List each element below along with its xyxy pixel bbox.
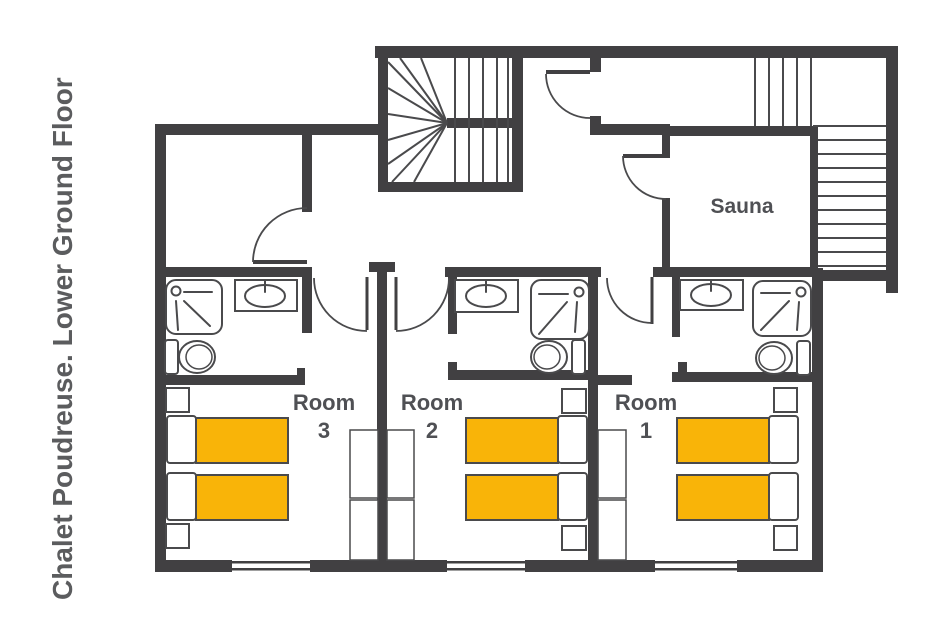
room-3-number: 3 — [318, 418, 330, 443]
window-room1 — [655, 561, 737, 571]
page-title: Chalet Poudreuse. Lower Ground Floor — [47, 77, 78, 600]
wall-topleftroom-right — [302, 130, 312, 212]
toilet-icon — [756, 341, 810, 375]
nightstand — [562, 526, 586, 550]
room-1: Room 1 — [598, 388, 798, 560]
bathroom-2 — [455, 280, 589, 374]
wall-corridor-2 — [445, 267, 601, 277]
wall-right-lower — [812, 268, 823, 572]
closet — [387, 500, 414, 560]
wall-bath3-return — [297, 368, 305, 375]
bathroom-1 — [680, 280, 811, 375]
sauna-label: Sauna — [710, 195, 773, 218]
wall-stair-left — [378, 46, 388, 192]
door-topleft-room — [253, 208, 307, 262]
wall-stair-right — [512, 46, 523, 192]
wall-hall-north — [590, 124, 670, 135]
wall-bottom-1 — [155, 560, 232, 572]
toilet-icon — [165, 340, 215, 374]
window-room2 — [447, 561, 525, 571]
wall-stair-bottom — [378, 182, 523, 192]
wall-bottom-2 — [310, 560, 447, 572]
wall-corridor-3 — [653, 267, 818, 277]
wall-upper-jamb — [590, 58, 601, 72]
wall-bottom-3 — [525, 560, 655, 572]
toilet-icon — [531, 340, 585, 374]
wall-corridor-1 — [155, 267, 312, 277]
bed — [167, 473, 288, 520]
bed — [677, 473, 798, 520]
closet — [350, 430, 378, 498]
floor-plan-page: Room 3 Room 2 Room 1 — [0, 0, 940, 626]
door-room3-entry — [314, 277, 367, 331]
room-1-label: Room — [615, 390, 677, 415]
room-1-number: 1 — [640, 418, 652, 443]
nightstand — [562, 389, 586, 413]
wall-vestibule1-room1 — [598, 375, 632, 385]
shower-icon — [753, 281, 811, 336]
wall-bath3-bottom — [155, 375, 305, 385]
room-3: Room 3 — [166, 388, 378, 560]
bed — [677, 416, 798, 463]
floor-plan-svg: Room 3 Room 2 Room 1 — [0, 0, 940, 626]
wall-topleft — [155, 124, 381, 135]
wall-bath3-right — [302, 267, 312, 333]
door-upper-hall — [546, 72, 590, 118]
bed — [466, 473, 587, 520]
closet — [350, 500, 378, 560]
closet — [598, 500, 626, 560]
right-staircase — [755, 58, 886, 266]
bed — [466, 416, 587, 463]
wall-bottom-4 — [737, 560, 823, 572]
wall-sauna-left-stub — [662, 126, 670, 158]
wall-bath1-bottom — [672, 372, 812, 382]
wall-stair-midbar — [447, 118, 512, 128]
wall-divider-cap — [369, 262, 395, 272]
door-sauna — [623, 156, 666, 199]
sauna-room: Sauna — [710, 195, 773, 218]
room-2-number: 2 — [426, 418, 438, 443]
nightstand — [774, 388, 797, 412]
wall-sauna-top — [662, 126, 818, 136]
closet — [598, 430, 626, 498]
nightstand — [774, 526, 797, 550]
nightstand — [166, 524, 189, 548]
window-room3 — [232, 561, 310, 571]
nightstand — [166, 388, 189, 412]
wall-bath2-bottom — [448, 370, 588, 380]
door-room2-entry — [396, 277, 449, 331]
room-2-label: Room — [401, 390, 463, 415]
shower-icon — [531, 280, 589, 339]
wall-bath1-left — [672, 277, 680, 337]
wall-right-upper — [886, 46, 898, 293]
sink-icon — [680, 280, 743, 310]
wall-sauna-left — [662, 198, 670, 274]
wall-hall-north-jamb — [590, 116, 601, 124]
wall-sauna-right — [810, 126, 818, 276]
sink-icon — [235, 280, 297, 311]
room-2: Room 2 — [387, 389, 587, 560]
bed — [167, 416, 288, 463]
wall-stair-bottom-right — [813, 270, 898, 281]
wall-top — [375, 46, 898, 58]
closet — [387, 430, 414, 498]
bathroom-3 — [165, 280, 297, 374]
room-3-label: Room — [293, 390, 355, 415]
shower-icon — [166, 280, 222, 334]
sink-icon — [455, 280, 518, 312]
door-room1-entry — [607, 277, 652, 324]
